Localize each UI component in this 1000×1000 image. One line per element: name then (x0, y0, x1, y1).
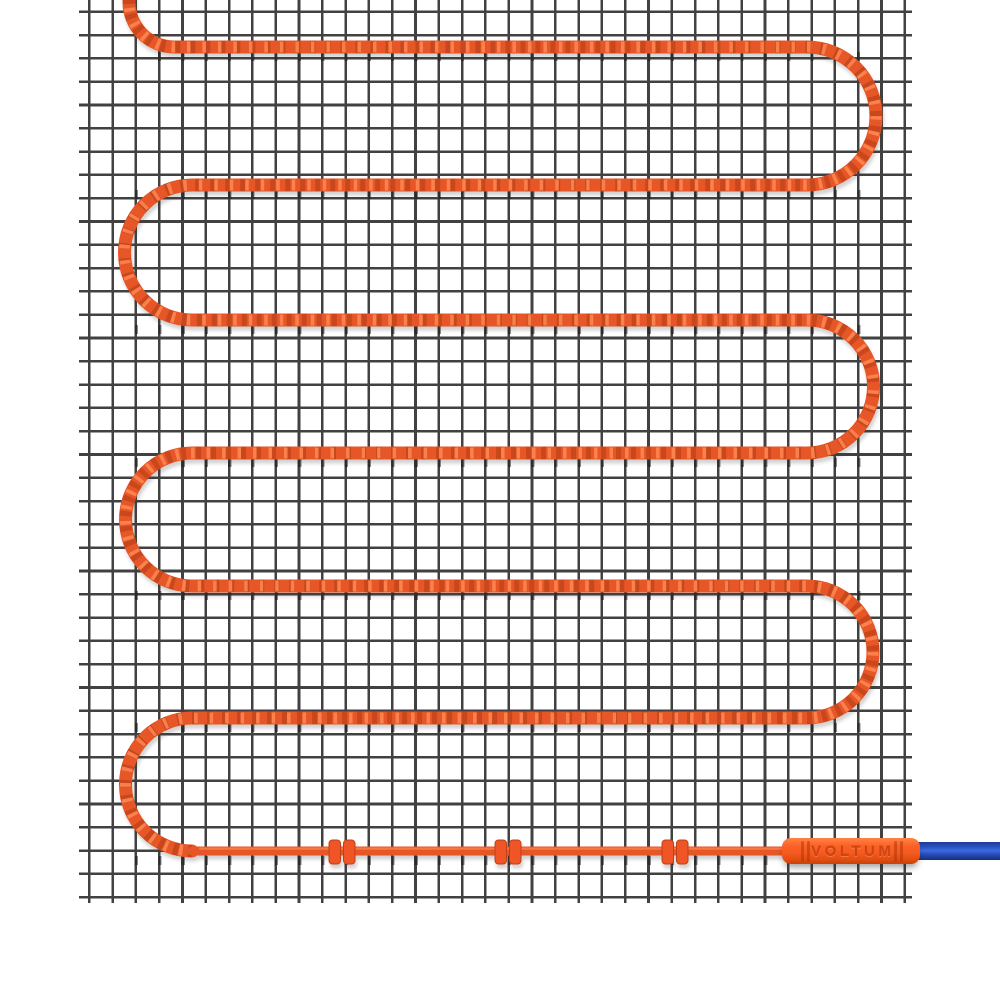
product-image: VOLTUM (0, 0, 1000, 1000)
splice-connector: VOLTUM (782, 838, 920, 864)
brand-embossed-text: VOLTUM (782, 838, 920, 864)
